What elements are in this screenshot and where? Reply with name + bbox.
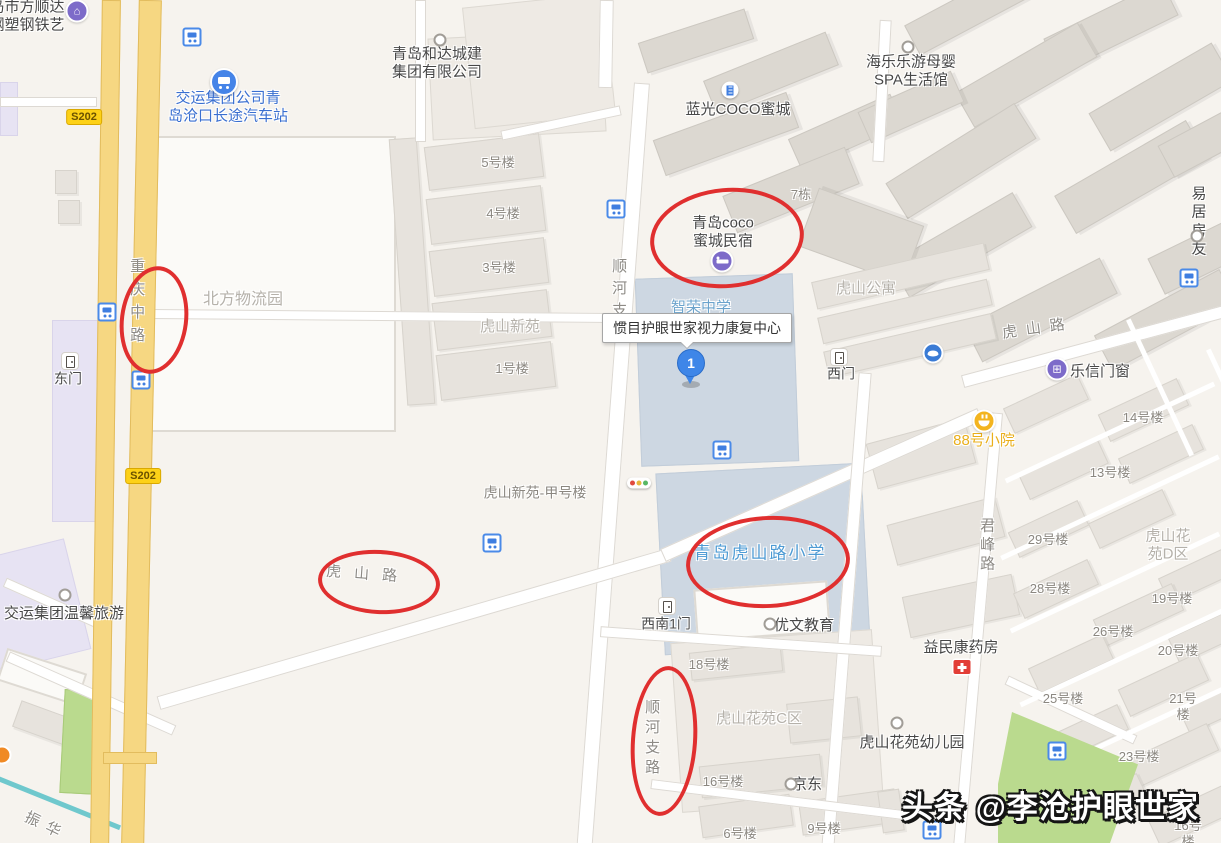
building [55,170,77,194]
restaurant-icon [973,410,996,433]
poi-jiaoyun-travel: 交运集团温馨旅游 [4,605,124,623]
map-canvas: 岛市方顺达 钢塑钢铁艺交运集团公司青 岛沧口长途汽车站青岛和达城建 集团有限公司… [0,0,1221,843]
bus-stop-icon [183,28,202,47]
unit-6haolou: 6号楼 [723,826,756,842]
area-beifang-logistics: 北方物流园 [203,290,283,310]
china-mobile-icon [923,343,944,364]
road [0,97,97,107]
unit-21haolou: 21号楼 [1164,691,1202,723]
poi-youwen-edu: 优文教育 [774,617,834,635]
road [598,0,614,88]
area-hushan-d: 虎山花苑D区 [1142,528,1195,565]
building-3d [955,22,1098,128]
bus-stop-icon [1180,269,1199,288]
shop-icon: ⌂ [66,0,89,23]
poi-languang-coco: 蓝光COCO蜜城 [685,101,790,119]
gate-door-icon [659,598,675,614]
unit-14haolou: 14号楼 [1123,410,1163,426]
unit-29haolou: 29号楼 [1028,532,1068,548]
block [462,0,616,129]
unit-25haolou: 25号楼 [1043,691,1083,707]
unit-16haolou-left: 16号楼 [703,774,743,790]
poi-yimin-pharmacy: 益民康药房 [923,639,998,657]
poi-dot-icon [59,589,72,602]
watermark-text: 头条 @李沧护眼世家 [902,782,1199,827]
poi-dot-icon [764,618,777,631]
poi-kindergarten: 虎山花苑幼儿园 [859,734,964,752]
annotation-ellipse [316,547,441,617]
poi-yiju-fangyou: 易居房友 [1188,185,1210,258]
poi-dot-icon [434,34,447,47]
road [1206,348,1221,486]
area-hushan-c: 虎山花苑C区 [716,710,802,728]
pharmacy-icon [954,660,971,674]
poi-dot-icon [1191,230,1204,243]
gate-door-icon [831,349,847,365]
poi-hedachengjian: 青岛和达城建 集团有限公司 [392,46,482,83]
unit-20haolou: 20号楼 [1158,643,1198,659]
area-hushanxinyuan: 虎山新苑 [480,318,540,336]
road-zhenhua: 振华 [21,809,70,843]
poi-haileyou: 海乐乐游母婴 SPA生活馆 [866,54,956,91]
road-badge-s202: S202 [125,468,161,484]
poi-dot-icon [891,717,904,730]
bus-stop-icon [713,441,732,460]
unit-7dong: 7栋 [791,187,811,203]
bus-stop-icon [483,534,502,553]
gate-southwest1: 西南1门 [641,615,691,632]
unit-13haolou: 13号楼 [1090,465,1130,481]
unit-1haolou: 1号楼 [495,361,528,377]
unit-3haolou: 3号楼 [482,260,515,276]
location-tooltip: 惯目护眼世家视力康复中心 [602,313,792,343]
bus-stop-icon [1048,742,1067,761]
gate-door-icon [62,353,78,369]
bus-stop-icon [98,303,117,322]
gate-west: 西门 [827,365,855,382]
bus-terminal-icon [210,68,238,96]
poi-lexin-windows: 乐信门窗 [1070,363,1130,381]
road-junfeng: 君峰路 [977,518,995,575]
unit-23haolou: 23号楼 [1119,749,1159,765]
poi-dot-icon [902,41,915,54]
road-yellow [103,752,157,764]
building-outline [148,136,396,432]
poi-fangshunda: 岛市方顺达 钢塑钢铁艺 [0,0,65,35]
building [58,200,80,224]
building-3d [904,0,1028,56]
building-icon [722,82,739,99]
bus-stop-icon [607,200,626,219]
road [872,20,891,162]
unit-9haolou: 9号楼 [807,821,840,837]
campus-area [0,82,18,136]
building-3d [638,8,754,73]
poi-dot-icon [785,778,798,791]
window-shop-icon: ⊞ [1046,358,1069,381]
unit-4haolou: 4号楼 [486,206,519,222]
unit-18haolou: 18号楼 [689,657,729,673]
unit-19haolou: 19号楼 [1152,591,1192,607]
area-hushan-apartment: 虎山公寓 [836,280,896,298]
unit-jiahaolou: 虎山新苑-甲号楼 [484,484,587,501]
building [902,574,1020,638]
unit-5haolou: 5号楼 [481,155,514,171]
unit-26haolou: 26号楼 [1093,624,1133,640]
traffic-light-icon [627,478,651,489]
road [953,412,1003,843]
unit-28haolou: 28号楼 [1030,581,1070,597]
building [1003,374,1089,434]
poi-88-courtyard: 88号小院 [953,432,1015,450]
poi-orange-icon [0,746,12,765]
gate-east: 东门 [54,370,82,387]
marker-tail [685,375,695,389]
road-badge-s202: S202 [66,109,102,125]
